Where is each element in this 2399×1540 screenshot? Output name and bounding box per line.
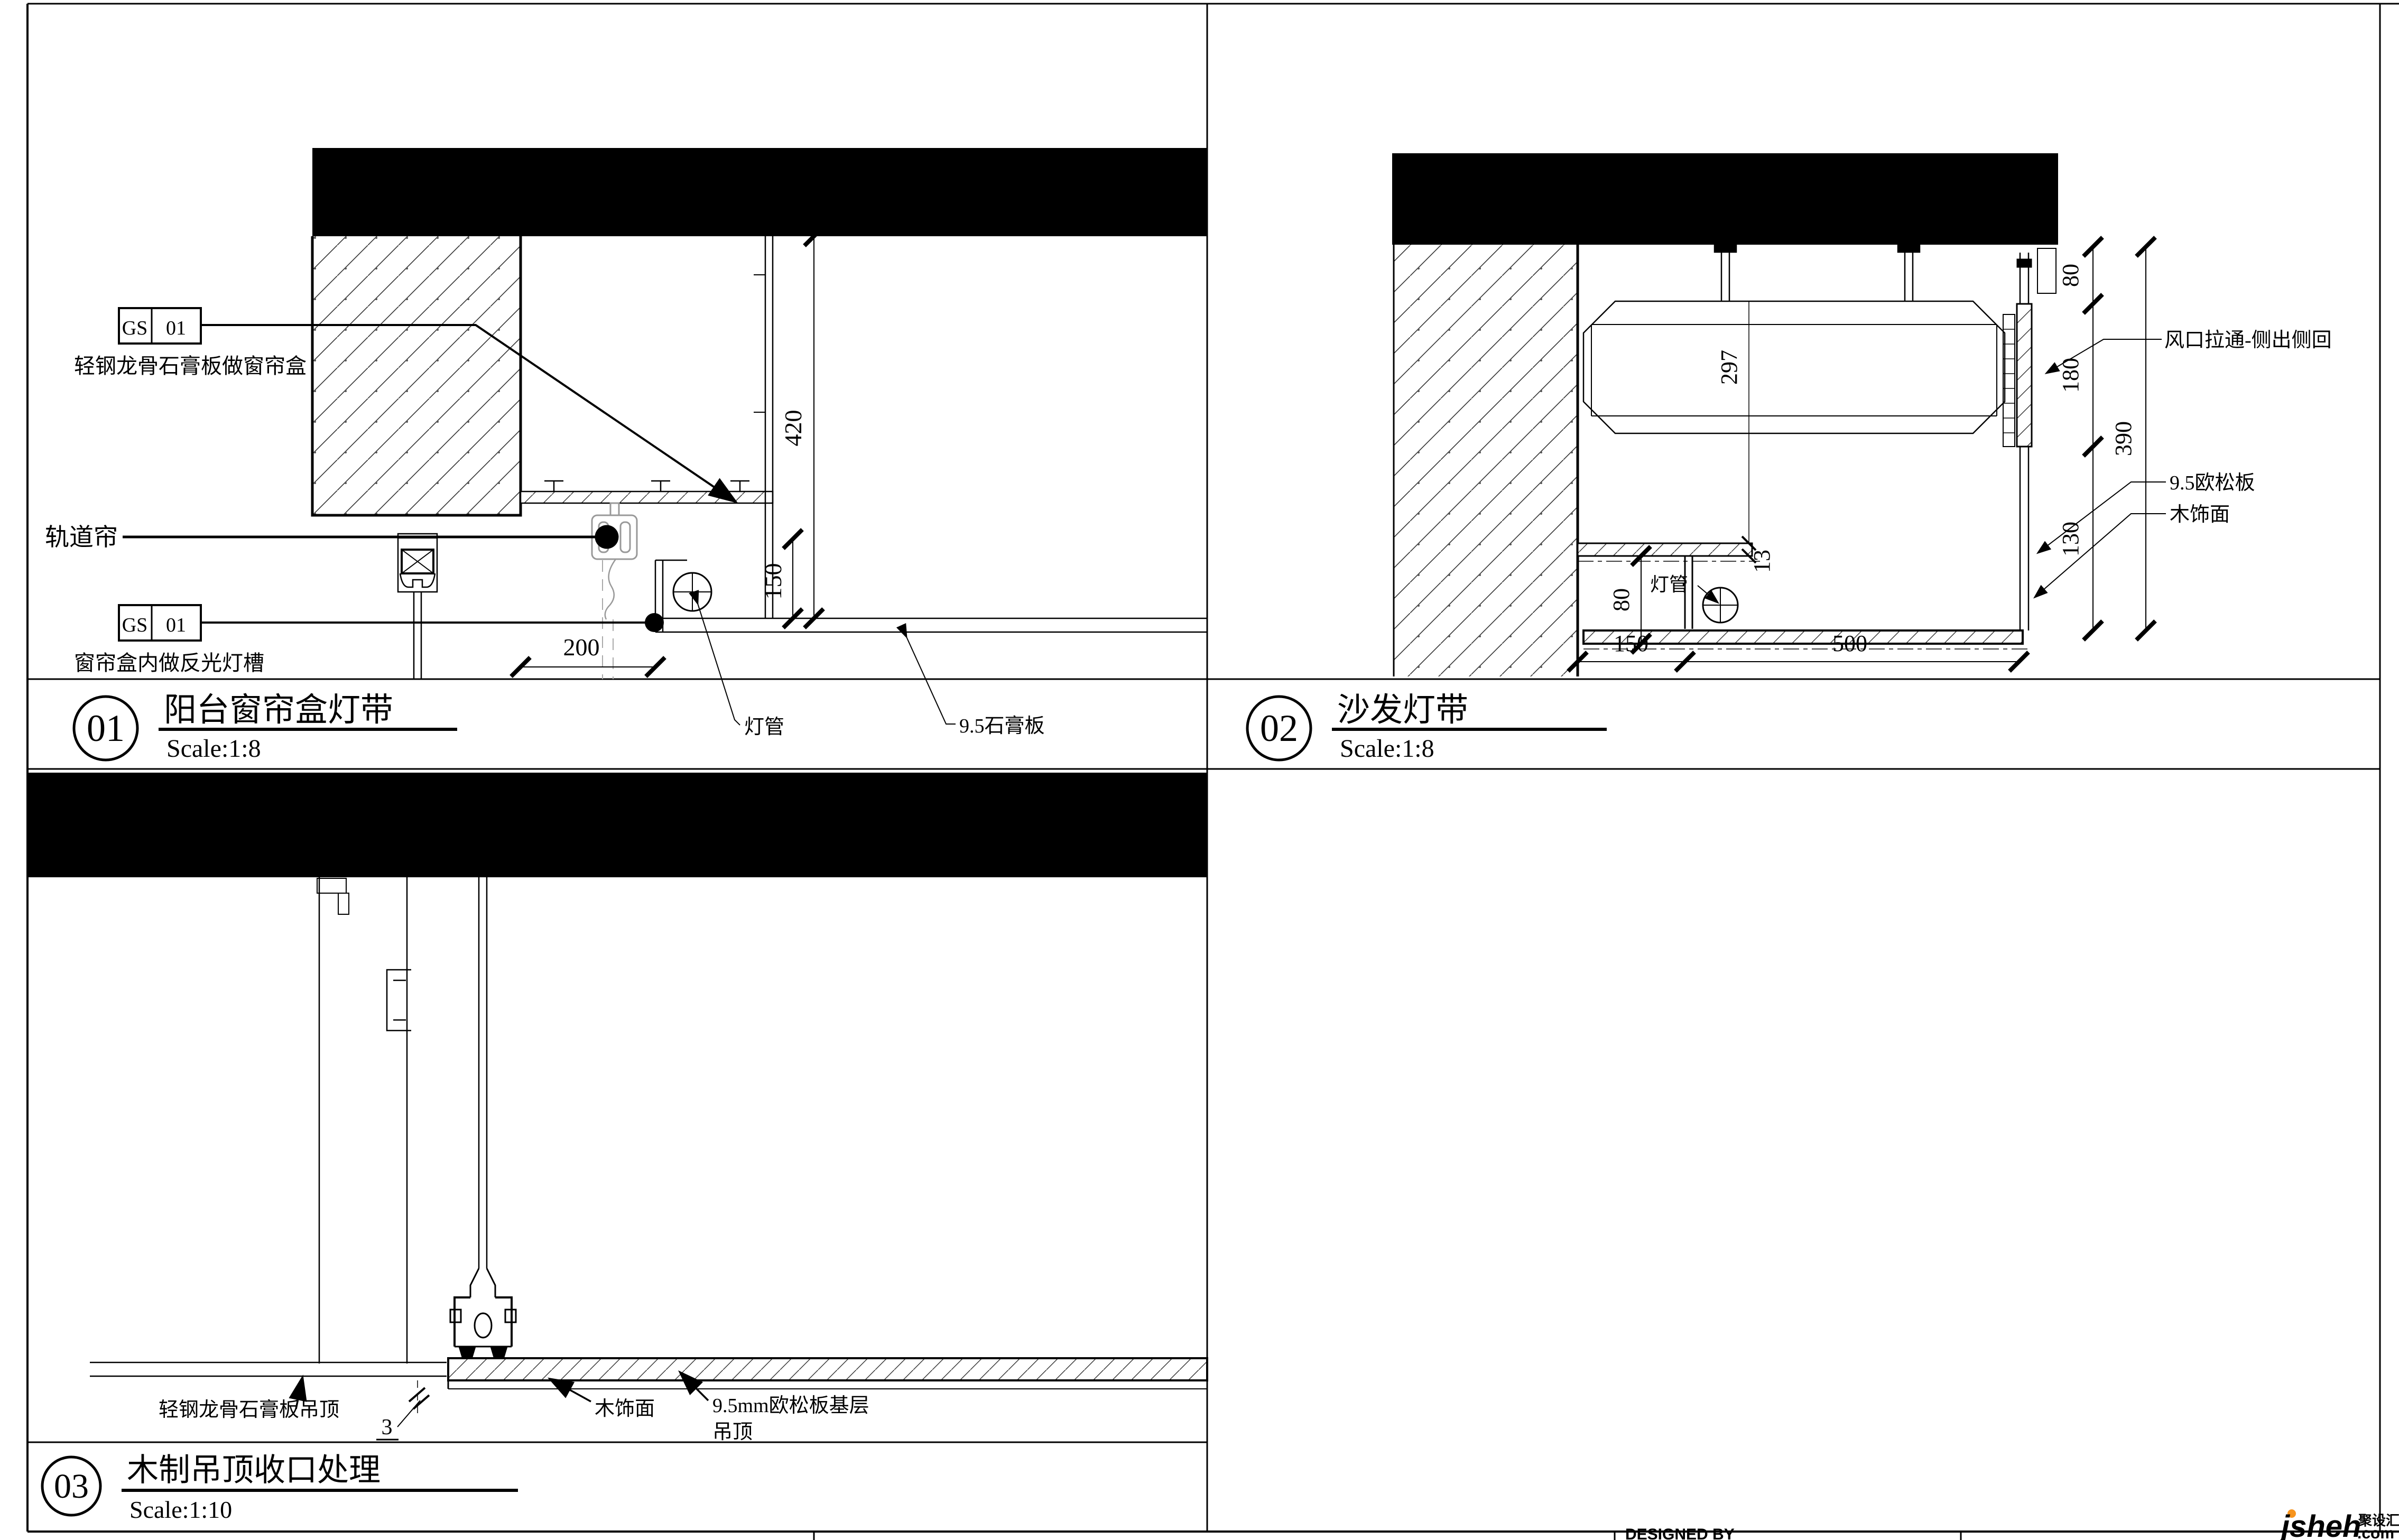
svg-text:150: 150 <box>1614 630 1648 656</box>
svg-text:01: 01 <box>87 707 125 749</box>
svg-text:Scale:1:8: Scale:1:8 <box>1340 735 1434 763</box>
svg-text:灯管: 灯管 <box>1650 574 1688 595</box>
dwg03-osb-ceiling <box>448 1358 1207 1389</box>
svg-text:03: 03 <box>54 1467 89 1506</box>
svg-text:9.5mm欧松板基层: 9.5mm欧松板基层 <box>712 1395 869 1417</box>
svg-text:轻钢龙骨石膏板吊顶: 轻钢龙骨石膏板吊顶 <box>159 1399 339 1421</box>
dwg01-window-mullion <box>398 534 437 679</box>
watermark-logo: jsheh 聚设汇 .com <box>2277 1509 2399 1540</box>
dwg02-vent-label: 风口拉通-侧出侧回 <box>2046 329 2332 373</box>
dwg01-dim-200: 200 <box>521 634 655 667</box>
dwg01-ceiling-board <box>655 618 1207 632</box>
svg-text:420: 420 <box>780 410 807 447</box>
svg-text:轻钢龙骨石膏板做窗帘盒: 轻钢龙骨石膏板做窗帘盒 <box>74 354 307 378</box>
svg-text:01: 01 <box>166 317 186 339</box>
dwg01-light-trough <box>655 560 687 632</box>
titleblock-02: 02 沙发灯带 Scale:1:8 <box>1247 692 1607 763</box>
svg-text:9.5欧松板: 9.5欧松板 <box>2170 472 2255 494</box>
svg-text:13: 13 <box>1749 550 1775 573</box>
svg-text:风口拉通-侧出侧回: 风口拉通-侧出侧回 <box>2164 329 2332 351</box>
dwg01-lamp-symbol <box>673 573 711 611</box>
svg-text:轨道帘: 轨道帘 <box>45 524 118 551</box>
dwg03-slab <box>27 773 1207 877</box>
svg-text:木制吊顶收口处理: 木制吊顶收口处理 <box>127 1453 381 1488</box>
svg-text:GS: GS <box>122 317 148 339</box>
dwg02-lamp-symbol <box>1703 588 1738 623</box>
dwg02-air-duct <box>1583 301 2005 543</box>
svg-text:02: 02 <box>1260 707 1298 749</box>
drawing-03: 3 轻钢龙骨石膏板吊顶 木饰面 9.5mm欧松板基层 吊顶 <box>27 773 1207 1443</box>
svg-text:130: 130 <box>2058 522 2083 556</box>
dwg03-window-edge <box>317 877 411 1363</box>
titleblock-01: 01 阳台窗帘盒灯带 Scale:1:8 <box>74 692 457 763</box>
dwg02-right-panel <box>2003 248 2056 630</box>
dwg02-slab <box>1392 153 2058 245</box>
svg-text:Scale:1:10: Scale:1:10 <box>129 1496 232 1523</box>
drawing-02: 297 灯管 <box>1392 153 2332 676</box>
dwg01-baffle <box>754 236 773 618</box>
svg-text:180: 180 <box>2058 358 2083 393</box>
dwg01-curtainbox-top-board <box>521 481 773 503</box>
dwg01-dim-150: 150 <box>759 539 793 618</box>
dwg01-lamp-label: 灯管 <box>698 604 784 738</box>
svg-text:灯管: 灯管 <box>744 716 784 738</box>
dwg02-wall <box>1394 245 1578 676</box>
cad-canvas: DESIGNED BY <box>0 0 2399 1540</box>
dwg01-curtain-dashed <box>603 560 613 679</box>
titleblock-partial-text: DESIGNED BY <box>1625 1526 1735 1540</box>
svg-text:500: 500 <box>1832 630 1867 656</box>
svg-text:80: 80 <box>2058 264 2083 287</box>
svg-text:200: 200 <box>563 634 600 661</box>
svg-text:jsheh: jsheh <box>2277 1509 2361 1540</box>
svg-text:01: 01 <box>166 614 186 636</box>
svg-text:Scale:1:8: Scale:1:8 <box>166 735 261 763</box>
dwg01-board-label: 9.5石膏板 <box>906 637 1045 737</box>
dwg03-dim-3: 3 <box>376 1380 429 1440</box>
svg-text:80: 80 <box>1608 588 1634 611</box>
svg-text:吊顶: 吊顶 <box>712 1421 753 1443</box>
dwg02-dim-13: 13 <box>1742 536 1775 573</box>
svg-text:阳台窗帘盒灯带: 阳台窗帘盒灯带 <box>164 692 393 728</box>
dwg01-dim-420: 420 <box>780 236 814 618</box>
dwg02-dim-right-stack: 80 180 130 390 <box>2058 247 2146 630</box>
svg-text:木饰面: 木饰面 <box>2170 504 2230 526</box>
dwg01-track-label: 轨道帘 <box>45 524 607 551</box>
svg-text:9.5石膏板: 9.5石膏板 <box>959 715 1045 737</box>
drawing-sheet: DESIGNED BY <box>0 0 2399 1540</box>
svg-text:390: 390 <box>2110 421 2136 456</box>
svg-text:3: 3 <box>382 1415 393 1440</box>
drawing-01: 420 150 200 GS 01 轻钢龙骨石膏板做窗帘盒 轨道帘 GS <box>45 148 1207 738</box>
dwg01-slab <box>312 148 1207 236</box>
dwg03-wood-label: 木饰面 <box>551 1379 655 1420</box>
dwg03-gypsum-label: 轻钢龙骨石膏板吊顶 <box>159 1378 339 1421</box>
svg-text:木饰面: 木饰面 <box>595 1398 655 1420</box>
dwg01-curtain-track <box>592 503 637 619</box>
svg-text:GS: GS <box>122 614 148 636</box>
dwg03-hanger-clip <box>450 877 516 1357</box>
dwg02-bottom-board <box>1583 630 2030 649</box>
svg-text:150: 150 <box>759 563 786 600</box>
svg-text:窗帘盒内做反光灯槽: 窗帘盒内做反光灯槽 <box>74 651 264 675</box>
svg-text:.com: .com <box>2357 1525 2394 1540</box>
dwg03-gypsum-ceiling <box>90 1362 447 1376</box>
dwg02-duct-dim: 297 <box>1716 350 1742 385</box>
dwg01-wall <box>312 236 521 515</box>
titleblock-03: 03 木制吊顶收口处理 Scale:1:10 <box>42 1453 518 1523</box>
dwg02-hangers <box>1715 245 1920 301</box>
svg-text:沙发灯带: 沙发灯带 <box>1337 692 1468 728</box>
dwg03-osb-label: 9.5mm欧松板基层 吊顶 <box>681 1373 869 1443</box>
dwg02-lamp-label: 灯管 <box>1650 574 1718 602</box>
